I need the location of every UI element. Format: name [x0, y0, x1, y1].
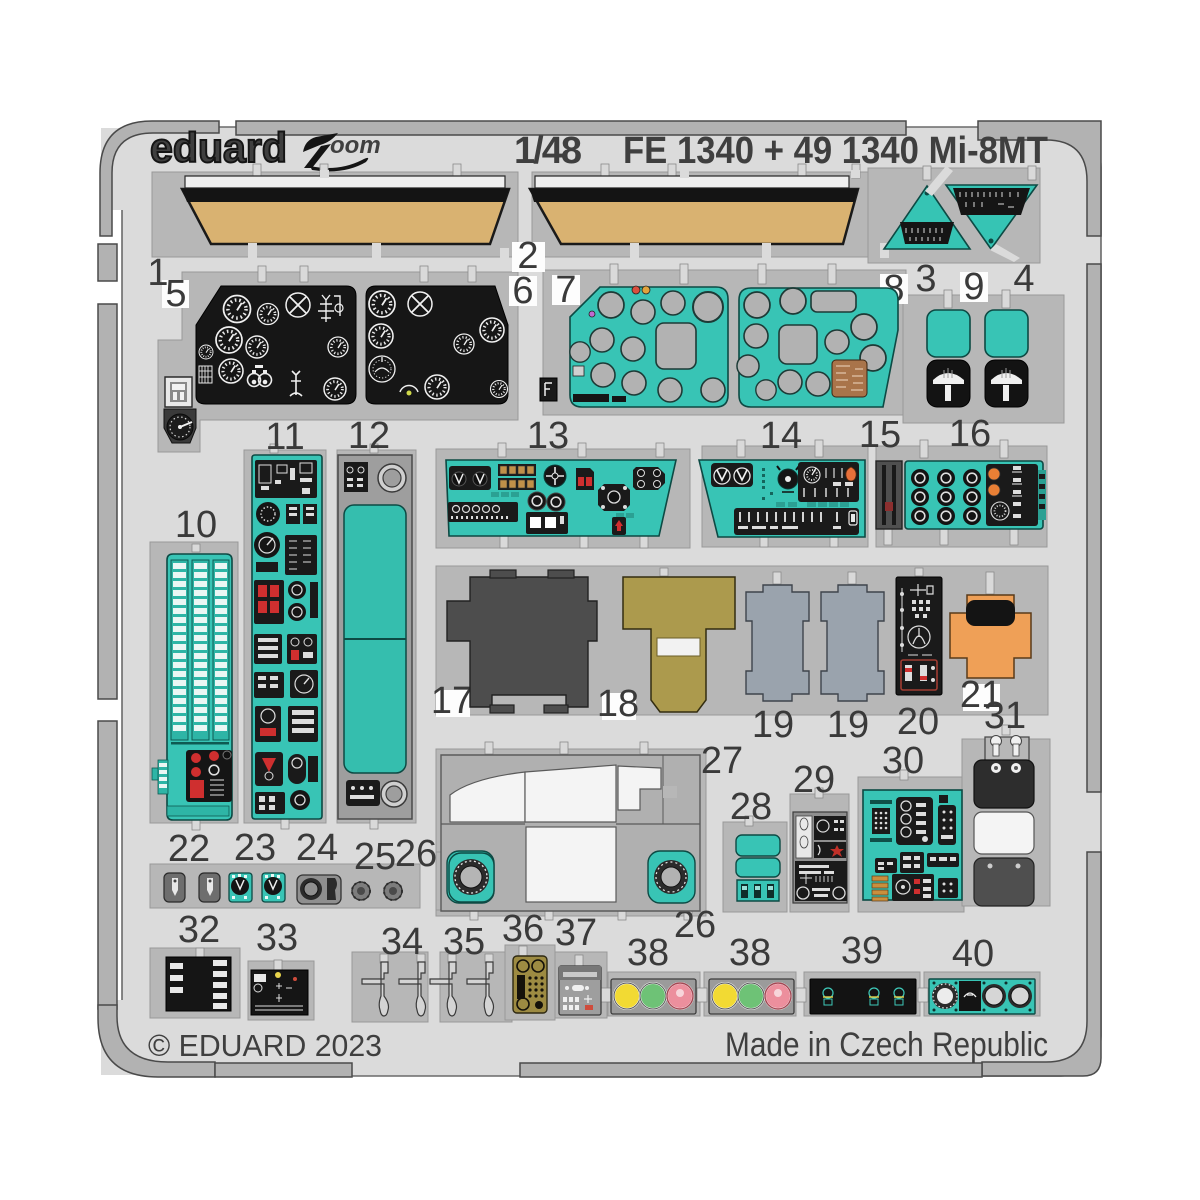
svg-text:Made in Czech Republic: Made in Czech Republic	[725, 1026, 1048, 1064]
svg-text:13: 13	[527, 415, 569, 457]
svg-text:36: 36	[502, 908, 544, 950]
svg-text:18: 18	[597, 683, 639, 725]
svg-text:38: 38	[729, 932, 771, 974]
svg-text:10: 10	[175, 504, 217, 546]
svg-text:14: 14	[760, 415, 802, 457]
svg-text:17: 17	[431, 680, 473, 722]
svg-text:28: 28	[730, 786, 772, 828]
svg-text:20: 20	[897, 701, 939, 743]
svg-text:35: 35	[443, 921, 485, 963]
svg-text:© EDUARD 2023: © EDUARD 2023	[148, 1028, 382, 1063]
svg-text:29: 29	[793, 759, 835, 801]
svg-text:40: 40	[952, 933, 994, 975]
svg-text:FE 1340 + 49 1340 Mi-8MT: FE 1340 + 49 1340 Mi-8MT	[623, 130, 1048, 172]
svg-text:oom: oom	[330, 132, 381, 159]
svg-text:5: 5	[165, 273, 186, 315]
svg-text:37: 37	[555, 912, 597, 954]
svg-text:12: 12	[348, 415, 390, 457]
svg-text:11: 11	[265, 416, 304, 458]
svg-text:38: 38	[627, 932, 669, 974]
svg-text:22: 22	[168, 828, 210, 870]
svg-text:25: 25	[354, 836, 396, 878]
svg-text:24: 24	[296, 827, 338, 869]
svg-text:7: 7	[555, 269, 576, 311]
svg-text:1/48: 1/48	[514, 130, 582, 172]
svg-text:23: 23	[234, 827, 276, 869]
svg-text:19: 19	[827, 704, 869, 746]
svg-text:30: 30	[882, 740, 924, 782]
svg-text:9: 9	[963, 266, 984, 308]
svg-text:33: 33	[256, 917, 298, 959]
svg-text:3: 3	[915, 258, 936, 300]
svg-text:16: 16	[949, 413, 991, 455]
svg-text:34: 34	[381, 921, 423, 963]
svg-text:4: 4	[1013, 258, 1034, 300]
svg-text:27: 27	[701, 740, 743, 782]
svg-text:eduard: eduard	[150, 124, 287, 171]
svg-text:32: 32	[178, 909, 220, 951]
svg-text:39: 39	[841, 930, 883, 972]
svg-text:6: 6	[512, 270, 533, 312]
svg-text:31: 31	[984, 695, 1026, 737]
svg-text:15: 15	[859, 414, 901, 456]
svg-text:26: 26	[395, 833, 437, 875]
svg-text:19: 19	[752, 704, 794, 746]
